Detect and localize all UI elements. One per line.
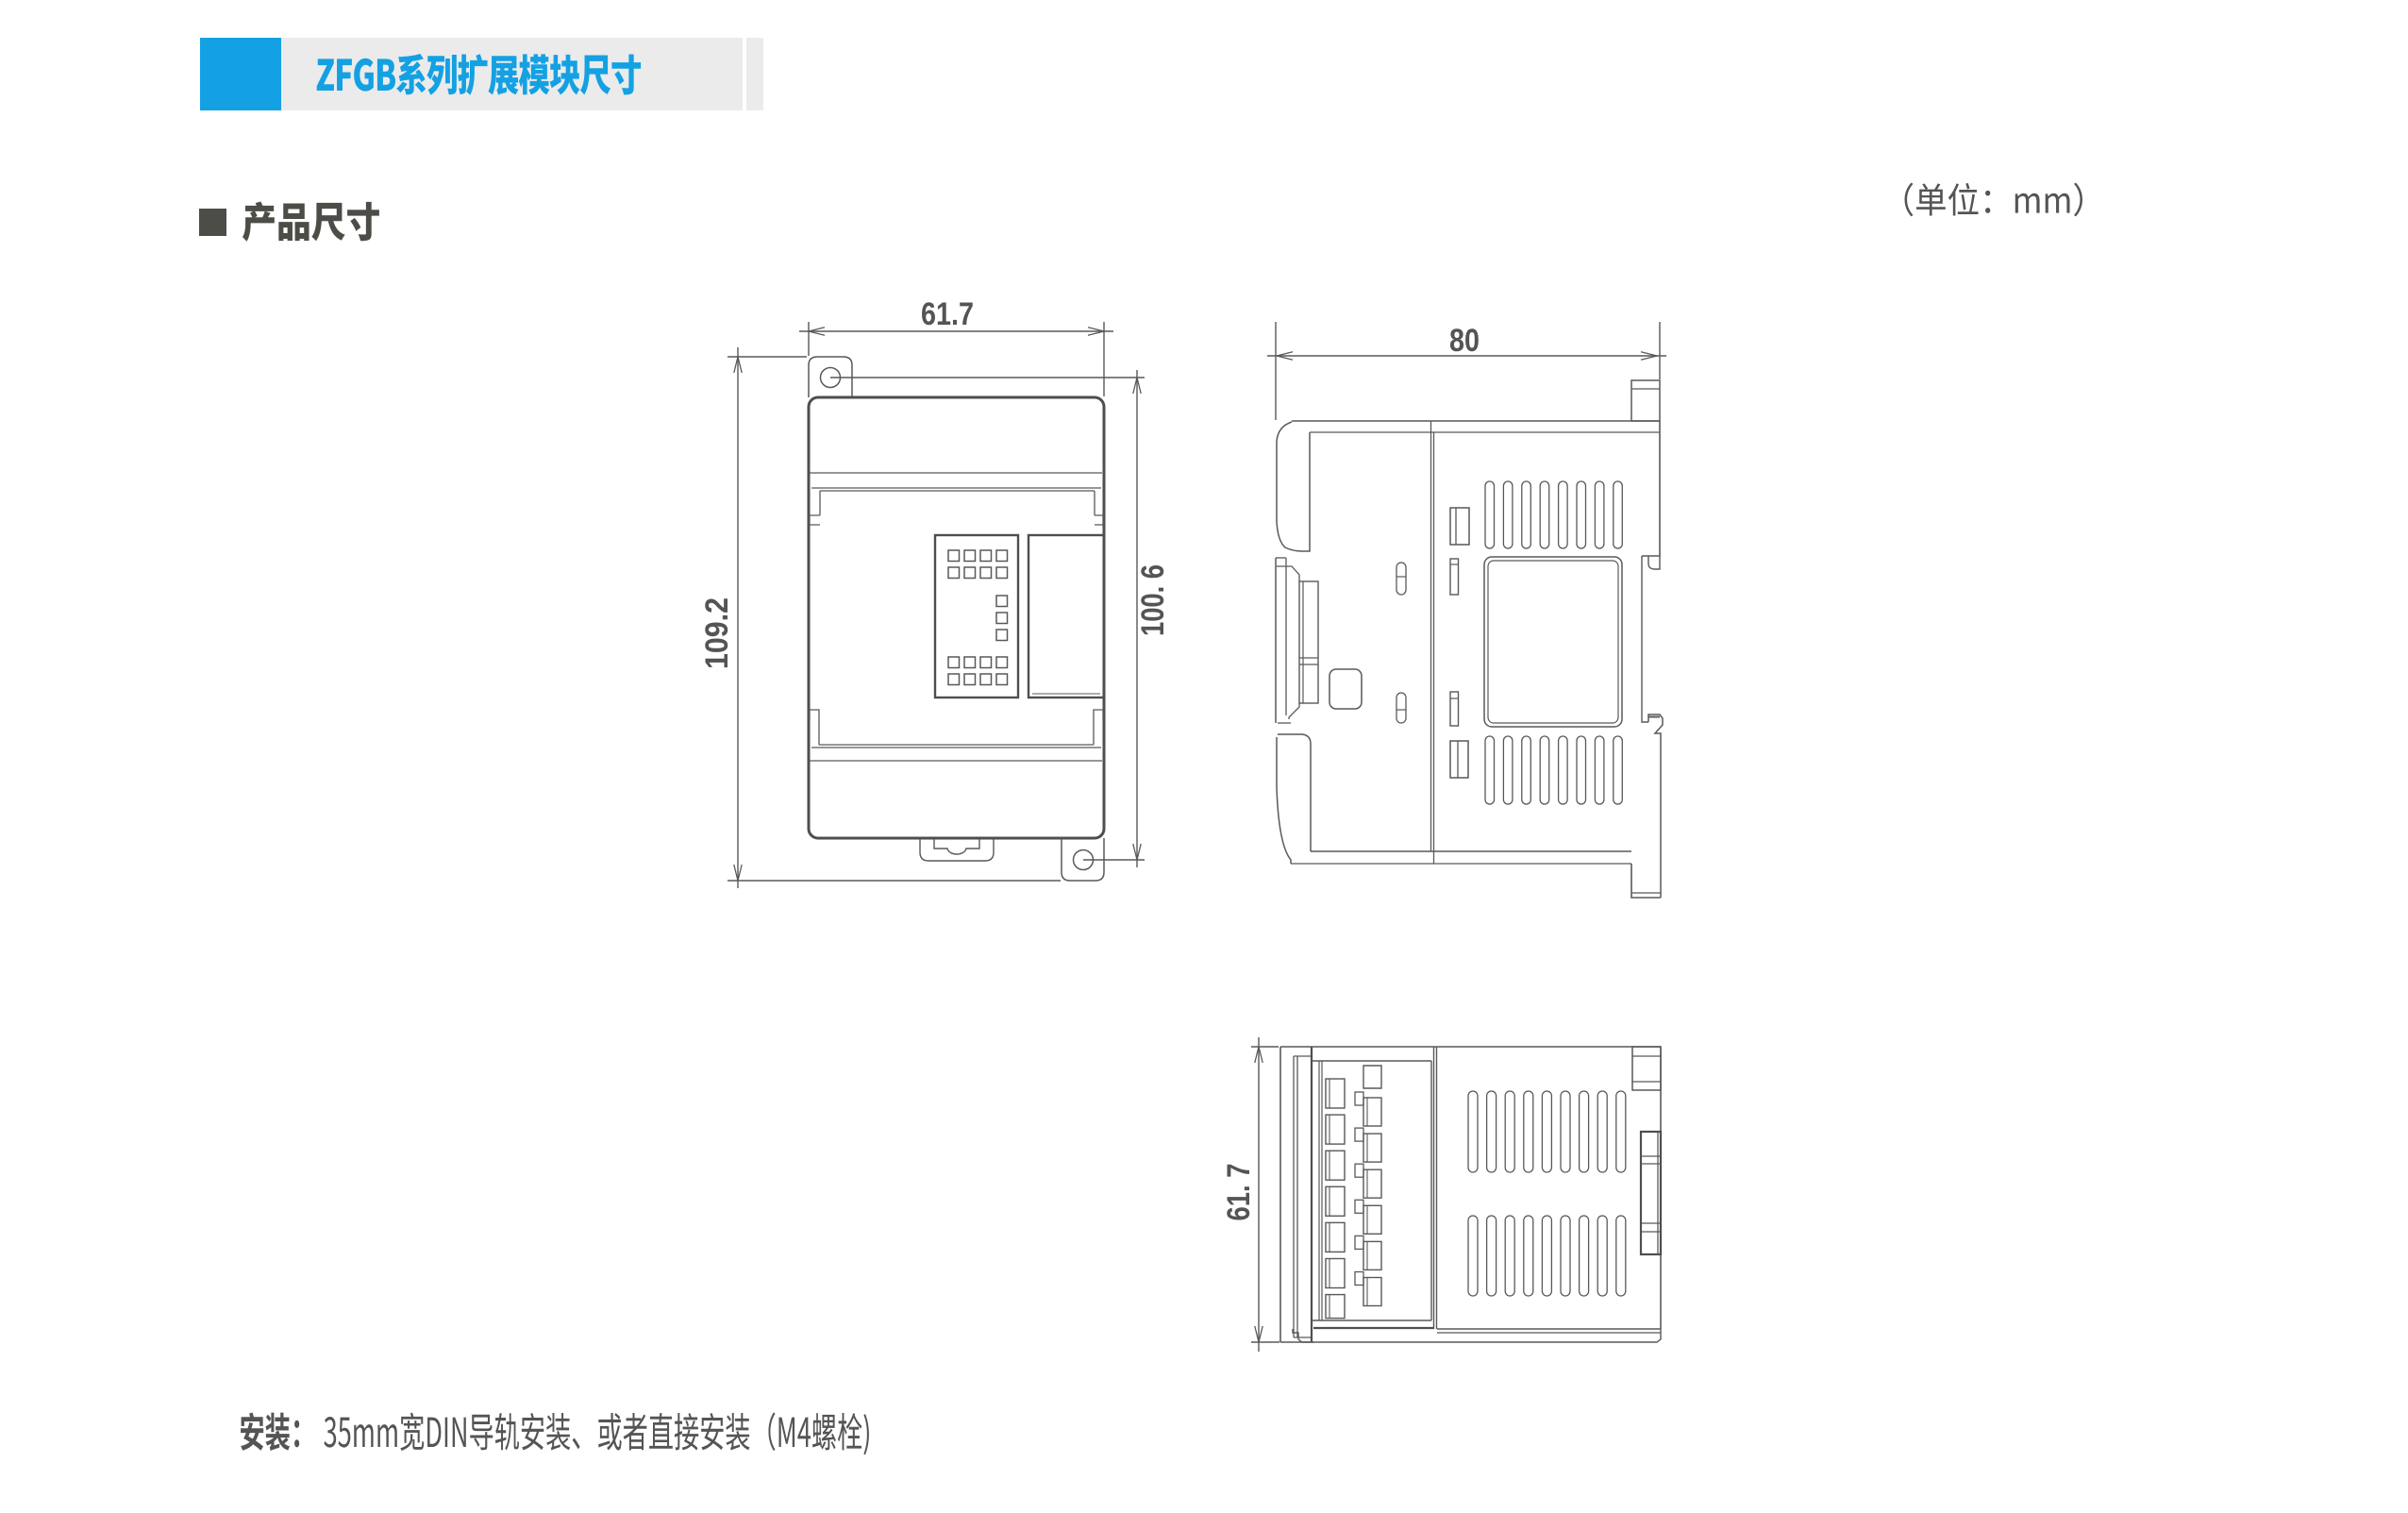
svg-text:80: 80 — [1449, 323, 1480, 359]
svg-text:61.7: 61.7 — [921, 296, 974, 332]
svg-text:61. 7: 61. 7 — [1221, 1164, 1257, 1221]
svg-text:109.2: 109.2 — [699, 597, 735, 669]
svg-text:100. 6: 100. 6 — [1135, 564, 1171, 636]
